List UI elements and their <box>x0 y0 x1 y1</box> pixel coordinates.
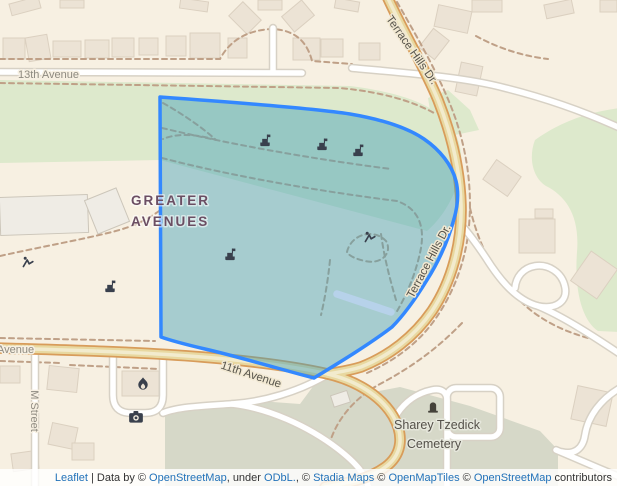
odbl-link[interactable]: ODbL. <box>264 472 296 484</box>
attribution-text: © <box>374 472 388 484</box>
building <box>228 38 247 58</box>
attribution-bar: Leaflet | Data by © OpenStreetMap, under… <box>0 469 617 486</box>
building <box>359 43 380 60</box>
leaflet-link[interactable]: Leaflet <box>55 472 88 484</box>
attribution-text: , under <box>227 472 264 484</box>
building <box>472 0 502 12</box>
building <box>72 443 94 460</box>
building <box>519 219 555 253</box>
road-label-m-street: M Street <box>28 390 40 432</box>
building <box>47 365 79 392</box>
building <box>258 0 282 10</box>
building <box>53 41 81 57</box>
building <box>535 209 553 218</box>
building <box>139 38 158 55</box>
attribution-text: | Data by © <box>88 472 149 484</box>
attribution-text: © <box>460 472 474 484</box>
attribution-text: contributors <box>551 472 612 484</box>
attribution-text: , © <box>296 472 313 484</box>
building <box>0 366 20 383</box>
building <box>600 0 617 12</box>
cemetery-label-name: Sharey Tzedick <box>394 418 481 432</box>
openstreetmap-link-2[interactable]: OpenStreetMap <box>474 472 552 484</box>
map-canvas[interactable]: 13th Avenue Avenue M Street 11th Avenue … <box>0 0 617 486</box>
building <box>166 36 186 56</box>
road-label-avenue-partial: Avenue <box>0 344 34 356</box>
openstreetmap-link[interactable]: OpenStreetMap <box>149 472 227 484</box>
building <box>85 40 109 58</box>
map-viewport[interactable]: 13th Avenue Avenue M Street 11th Avenue … <box>0 0 617 486</box>
building <box>3 38 25 59</box>
neighborhood-label-line1: GREATER <box>131 193 210 208</box>
stadia-maps-link[interactable]: Stadia Maps <box>313 472 374 484</box>
building <box>321 39 343 57</box>
cemetery-label-type: Cemetery <box>407 437 462 451</box>
openmaptiles-link[interactable]: OpenMapTiles <box>388 472 459 484</box>
building <box>60 0 84 8</box>
road-label-13th-avenue: 13th Avenue <box>18 69 79 81</box>
building <box>190 33 220 58</box>
building <box>0 194 89 235</box>
building <box>25 34 51 61</box>
neighborhood-label-line2: AVENUES <box>131 214 209 229</box>
building <box>112 38 134 57</box>
